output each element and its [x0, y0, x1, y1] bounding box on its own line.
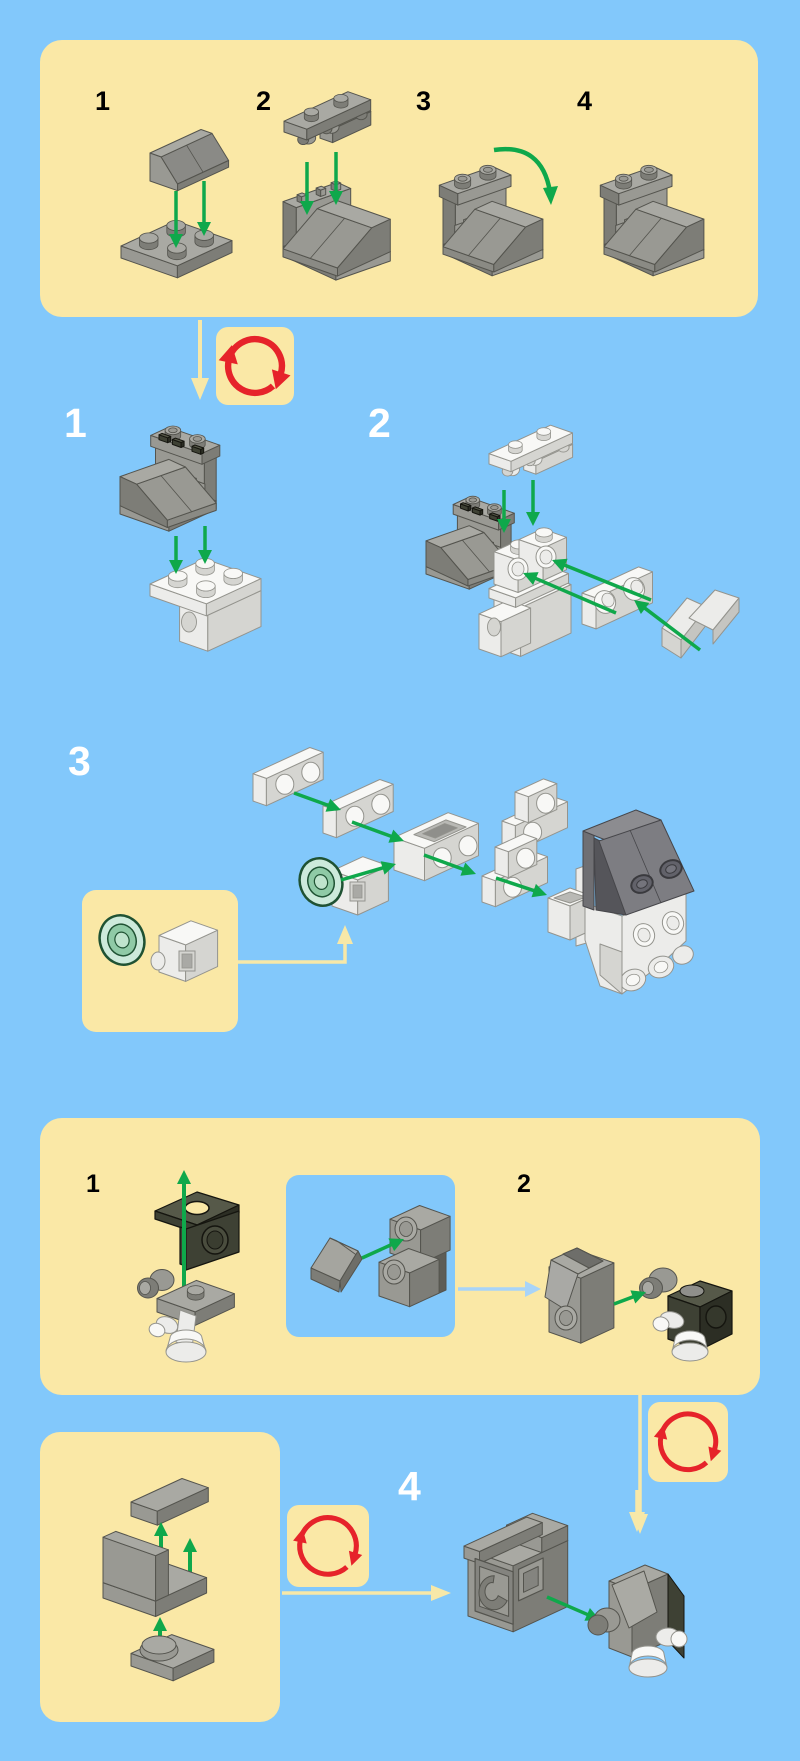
svg-text:3: 3: [416, 86, 431, 116]
svg-text:2: 2: [517, 1170, 531, 1198]
svg-text:2: 2: [368, 400, 391, 446]
svg-text:4: 4: [577, 86, 592, 116]
svg-text:1: 1: [64, 400, 87, 446]
svg-text:1: 1: [86, 1170, 100, 1198]
svg-text:3: 3: [68, 738, 91, 784]
svg-text:1: 1: [95, 86, 110, 116]
svg-text:4: 4: [398, 1463, 421, 1509]
svg-text:2: 2: [256, 86, 271, 116]
